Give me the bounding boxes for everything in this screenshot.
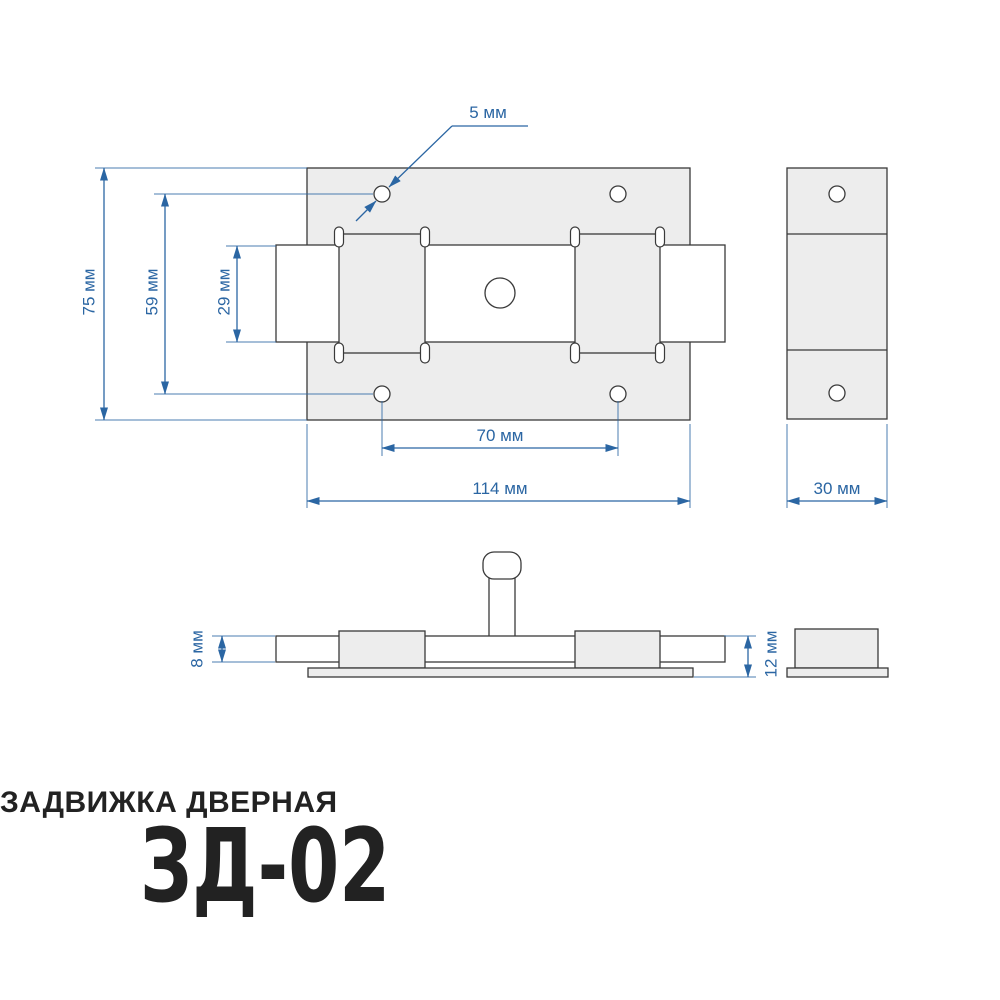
elevation-left-guide [339, 631, 425, 668]
knob [483, 552, 521, 579]
dim-label-bolt-thickness: 8 мм [188, 630, 207, 668]
elevation-base-plate [308, 668, 693, 677]
dim-label-overall-thickness: 12 мм [762, 630, 781, 677]
guide-slot [656, 343, 665, 363]
drawing-canvas: 75 мм 59 мм 29 мм 5 мм 70 мм [0, 0, 1000, 1000]
screw-hole [610, 386, 626, 402]
screw-hole [829, 186, 845, 202]
guide-slot [421, 343, 430, 363]
guide-slot [656, 227, 665, 247]
dim-label-plate-height: 75 мм [80, 268, 99, 315]
screw-hole [374, 186, 390, 202]
screw-hole [610, 186, 626, 202]
guide-slot [421, 227, 430, 247]
top-view-left-guide [339, 234, 425, 353]
dim-label-hole-spacing-vertical: 59 мм [143, 268, 162, 315]
guide-slot [335, 227, 344, 247]
dim-label-hole-diameter: 5 мм [469, 103, 507, 122]
keeper-base-plate [787, 668, 888, 677]
guide-slot [571, 343, 580, 363]
dim-label-keeper-width: 30 мм [813, 479, 860, 498]
screw-hole [829, 385, 845, 401]
dim-label-plate-width: 114 мм [472, 479, 527, 498]
elevation-right-guide [575, 631, 660, 668]
bolt-knob-hole [485, 278, 515, 308]
end-view-plate [787, 168, 887, 419]
guide-slot [571, 227, 580, 247]
dim-label-hole-spacing-horizontal: 70 мм [476, 426, 523, 445]
end-view [787, 168, 887, 419]
screw-hole [374, 386, 390, 402]
knob-stem [489, 577, 515, 637]
product-model: ЗД-02 [140, 816, 860, 918]
guide-slot [335, 343, 344, 363]
top-view-right-guide [575, 234, 660, 353]
dim-label-bolt-width: 29 мм [215, 268, 234, 315]
side-elevation [276, 552, 888, 677]
keeper-block [795, 629, 878, 668]
top-view [276, 168, 725, 420]
